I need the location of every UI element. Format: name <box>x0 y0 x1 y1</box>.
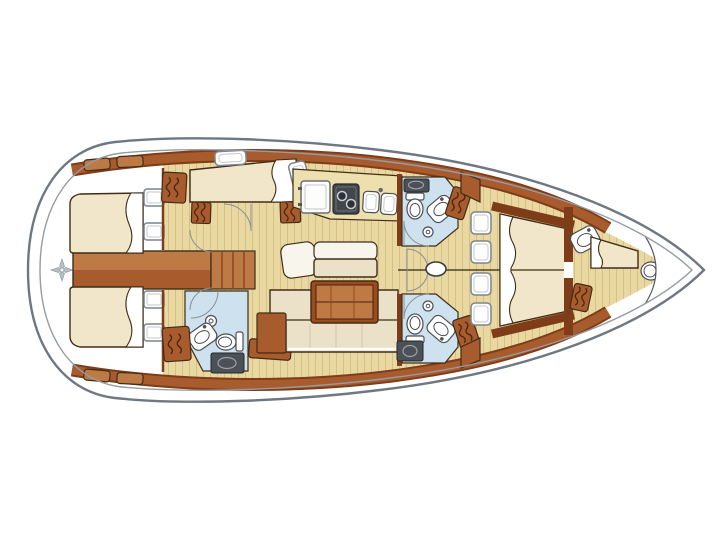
hull-window <box>144 189 164 206</box>
mast-base <box>426 262 446 276</box>
shower-icon <box>423 301 433 311</box>
hanging-locker <box>161 172 187 203</box>
toilet <box>406 193 424 219</box>
aft-cabin-port <box>70 193 143 253</box>
floor-plan-canvas <box>0 0 720 540</box>
deck-locker <box>117 372 144 384</box>
refrigerator <box>298 181 330 213</box>
bench-seat <box>314 259 377 277</box>
hull-window <box>144 223 164 240</box>
storage-cabinet <box>257 313 286 353</box>
hull-window <box>471 241 491 263</box>
hull-window <box>144 291 164 308</box>
bench-backrest <box>314 242 377 260</box>
bulkhead-doorway <box>564 262 573 278</box>
utility-unit <box>397 341 423 361</box>
engine-compartment <box>73 251 211 289</box>
utility-unit <box>211 353 244 373</box>
toilet <box>406 314 424 343</box>
vanity-counter <box>404 179 429 192</box>
shower-icon <box>423 227 433 237</box>
aft-cabin-starboard <box>70 287 143 347</box>
stove <box>333 184 359 214</box>
deck-locker <box>117 155 144 167</box>
hull-window <box>471 273 491 295</box>
hull-window <box>471 212 491 234</box>
chaise-seat <box>280 241 318 279</box>
head-bulkhead <box>397 174 402 246</box>
hull-window <box>471 303 491 325</box>
floor-plan-page <box>0 0 720 540</box>
deck-hatch <box>215 150 247 166</box>
dining-table <box>311 281 378 323</box>
hull-window <box>144 324 164 341</box>
hanging-locker <box>191 202 211 224</box>
companionway-steps <box>211 251 255 289</box>
hanging-locker <box>162 326 191 362</box>
